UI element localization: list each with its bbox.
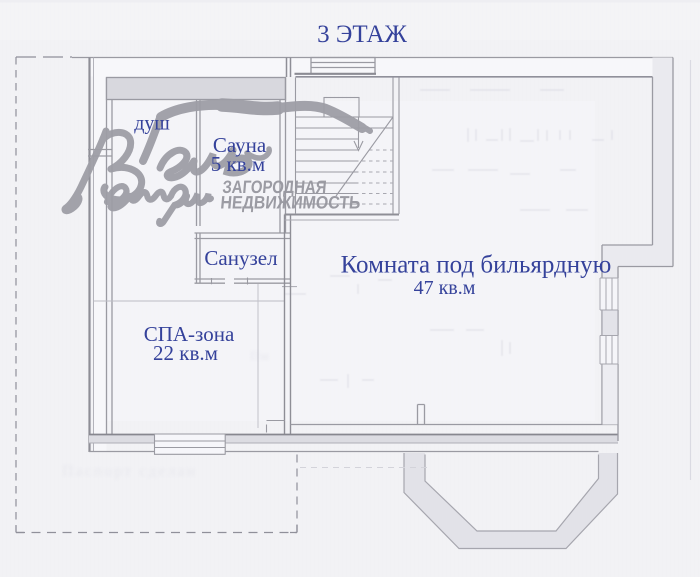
svg-text:22 кв.м: 22 кв.м <box>153 341 218 365</box>
svg-text:Паспорт сделан: Паспорт сделан <box>62 463 197 480</box>
svg-text:47 кв.м: 47 кв.м <box>414 277 476 299</box>
svg-text:5 кв.м: 5 кв.м <box>211 152 265 176</box>
svg-text:Комната под бильярдную: Комната под бильярдную <box>341 252 612 279</box>
svg-text:3 ЭТАЖ: 3 ЭТАЖ <box>317 21 407 48</box>
svg-text:душ: душ <box>134 113 170 135</box>
svg-text:Пм: Пм <box>250 348 270 363</box>
svg-text:НЕДВИЖИМОСТЬ: НЕДВИЖИМОСТЬ <box>220 193 362 213</box>
svg-text:Санузел: Санузел <box>204 246 277 270</box>
